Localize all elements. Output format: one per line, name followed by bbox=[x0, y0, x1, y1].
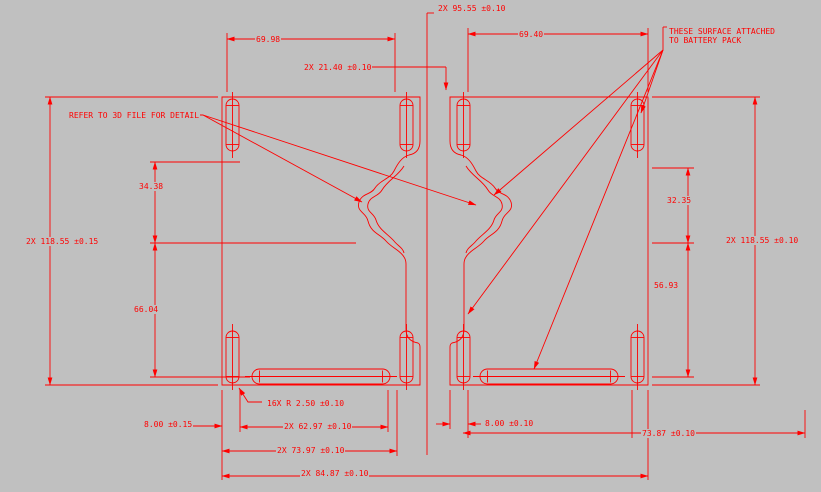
right-part-outline bbox=[450, 92, 648, 390]
dim-right-upper-height: 32.35 bbox=[666, 196, 692, 205]
drawing-geometry bbox=[0, 0, 821, 492]
dim-right-overall-height: 2X 118.55 ±0.10 bbox=[725, 236, 799, 245]
dim-right-bottom-width: 73.87 ±0.10 bbox=[641, 429, 696, 438]
battery-note-line1: THESE SURFACE ATTACHED bbox=[669, 27, 775, 36]
dim-left-tab-width: 8.00 ±0.15 bbox=[143, 420, 193, 429]
battery-note: THESE SURFACE ATTACHED TO BATTERY PACK bbox=[668, 27, 776, 45]
dim-left-slot-width: 2X 62.97 ±0.10 bbox=[283, 422, 352, 431]
dim-right-tab-width: 8.00 ±0.10 bbox=[484, 419, 534, 428]
dim-right-part-top-width: 69.40 bbox=[518, 30, 544, 39]
dim-right-lower-height: 56.93 bbox=[653, 281, 679, 290]
dim-corner-radius: 16X R 2.50 ±0.10 bbox=[266, 399, 345, 408]
cad-drawing-canvas[interactable]: 2X 95.55 ±0.10 69.98 69.40 2X 21.40 ±0.1… bbox=[0, 0, 821, 492]
left-part-outline bbox=[222, 92, 420, 390]
dim-overall-pair-width: 2X 95.55 ±0.10 bbox=[437, 4, 506, 13]
dimension-lines bbox=[45, 13, 805, 480]
dim-left-upper-height: 34.38 bbox=[138, 182, 164, 191]
dim-tab-width: 2X 21.40 ±0.10 bbox=[303, 63, 372, 72]
dim-left-bottom-width: 2X 73.97 ±0.10 bbox=[276, 446, 345, 455]
refer-note: REFER TO 3D FILE FOR DETAIL bbox=[68, 111, 200, 120]
leader-lines bbox=[182, 27, 667, 402]
dim-left-overall-height: 2X 118.55 ±0.15 bbox=[25, 237, 99, 246]
battery-note-line2: TO BATTERY PACK bbox=[669, 36, 775, 45]
dim-left-lower-height: 66.04 bbox=[133, 305, 159, 314]
dim-left-part-top-width: 69.98 bbox=[255, 35, 281, 44]
dim-overall-bottom-width: 2X 84.87 ±0.10 bbox=[300, 469, 369, 478]
